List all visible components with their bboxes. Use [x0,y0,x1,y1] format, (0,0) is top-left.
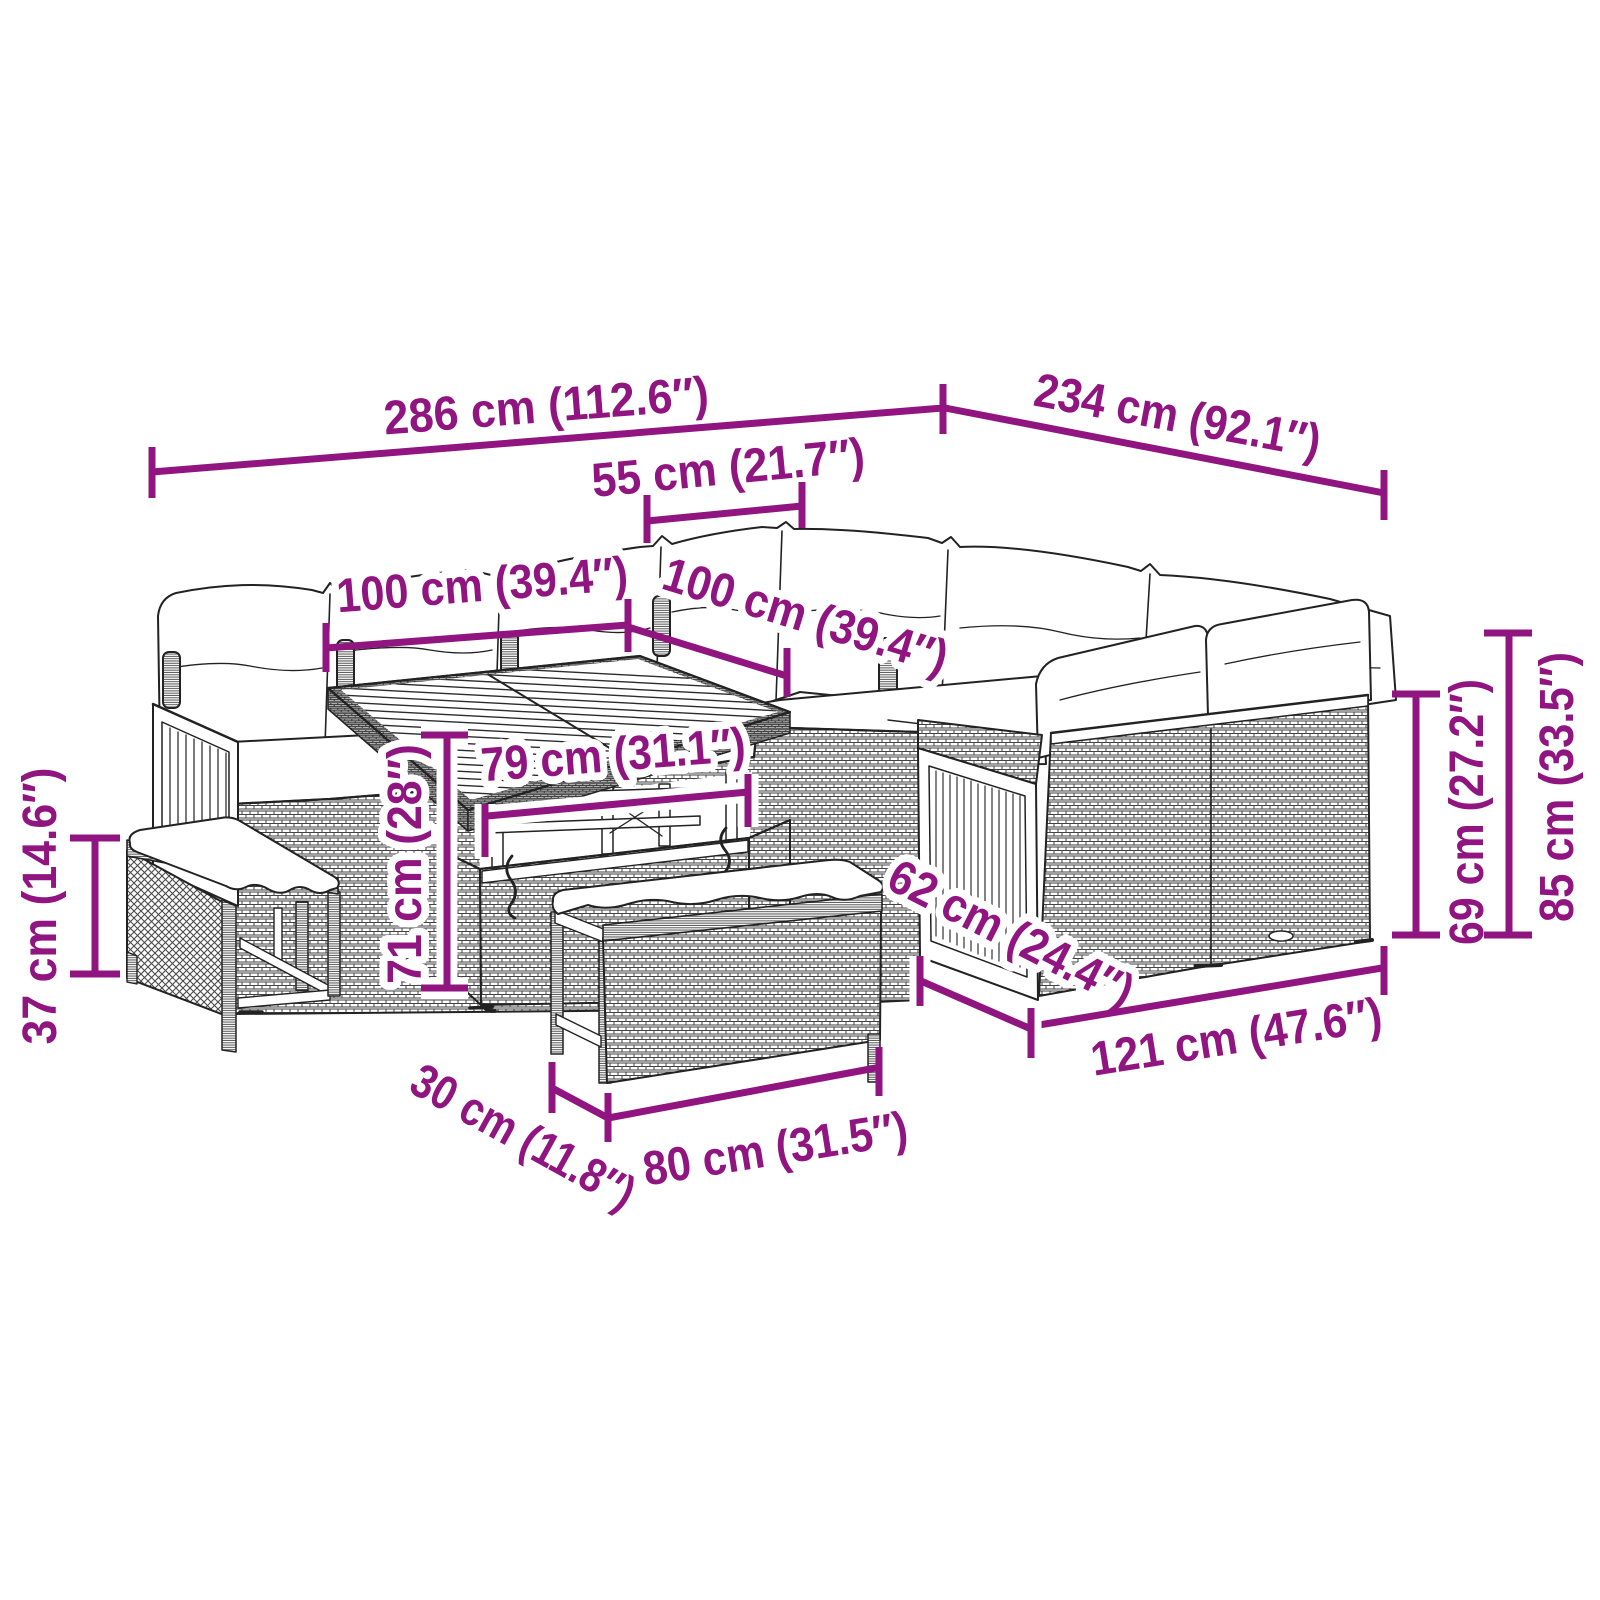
svg-text:85 cm (33.5″): 85 cm (33.5″) [1530,652,1583,922]
svg-text:37 cm (14.6″): 37 cm (14.6″) [13,768,67,1045]
svg-text:71 cm (28″): 71 cm (28″) [378,744,432,984]
svg-text:69 cm (27.2″): 69 cm (27.2″) [1440,679,1494,945]
